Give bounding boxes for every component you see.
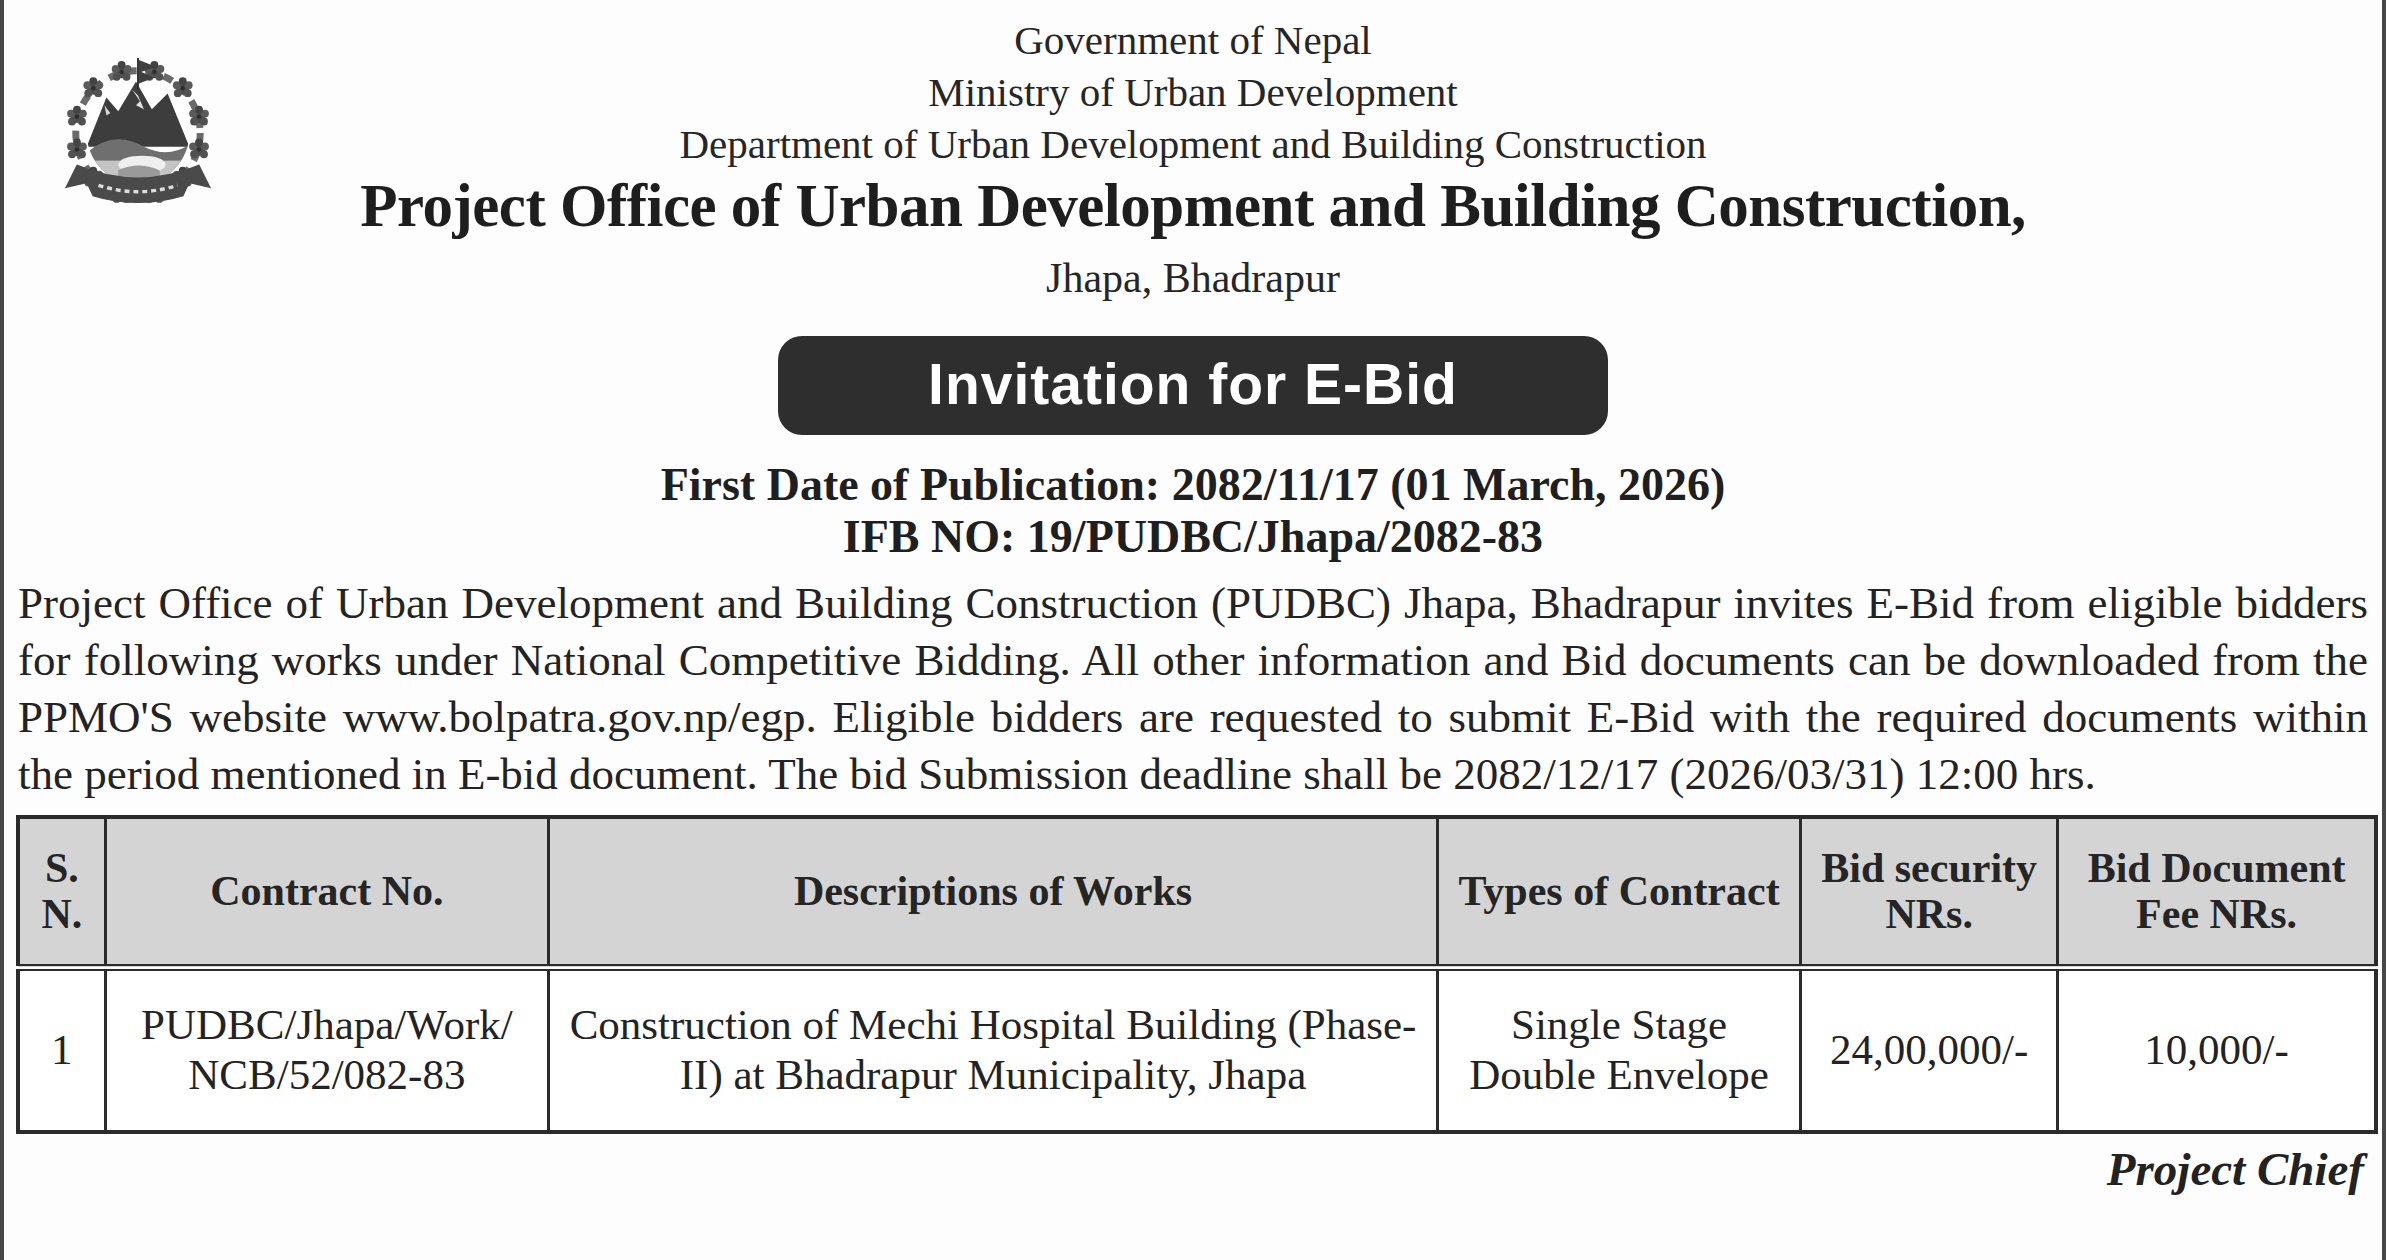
- table-row: 1 PUDBC/Jhapa/Work/ NCB/52/082-83 Constr…: [18, 967, 2376, 1132]
- cell-contract-no: PUDBC/Jhapa/Work/ NCB/52/082-83: [105, 967, 548, 1132]
- office-title: Project Office of Urban Development and …: [4, 170, 2382, 242]
- table-header-bid-fee: Bid Document Fee NRs.: [2058, 817, 2376, 967]
- nepal-emblem-icon: [48, 50, 228, 208]
- location-line: Jhapa, Bhadrapur: [4, 250, 2382, 306]
- ebid-banner: Invitation for E-Bid: [778, 336, 1608, 435]
- publication-date-line: First Date of Publication: 2082/11/17 (0…: [4, 459, 2382, 511]
- gov-line: Government of Nepal: [4, 14, 2382, 66]
- header-block: Government of Nepal Ministry of Urban De…: [4, 14, 2382, 306]
- ifb-number-line: IFB NO: 19/PUDBC/Jhapa/2082-83: [4, 511, 2382, 563]
- dept-line: Department of Urban Development and Buil…: [4, 118, 2382, 170]
- table-header-sn: S. N.: [18, 817, 105, 967]
- cell-contract-type: Single Stage Double Envelope: [1438, 967, 1801, 1132]
- cell-bid-fee: 10,000/-: [2058, 967, 2376, 1132]
- cell-bid-security: 24,00,000/-: [1801, 967, 2058, 1132]
- bid-table: S. N. Contract No. Descriptions of Works…: [16, 815, 2378, 1134]
- signature-project-chief: Project Chief: [4, 1144, 2364, 1194]
- table-header-description: Descriptions of Works: [549, 817, 1438, 967]
- table-header-bid-security: Bid security NRs.: [1801, 817, 2058, 967]
- cell-description: Construction of Mechi Hospital Building …: [549, 967, 1438, 1132]
- banner-row: Invitation for E-Bid: [4, 336, 2382, 435]
- table-header-row: S. N. Contract No. Descriptions of Works…: [18, 817, 2376, 967]
- nepal-emblem-logo: [48, 50, 228, 208]
- table-header-contract-no: Contract No.: [105, 817, 548, 967]
- cell-sn: 1: [18, 967, 105, 1132]
- table-header-contract-type: Types of Contract: [1438, 817, 1801, 967]
- notice-sheet: Government of Nepal Ministry of Urban De…: [0, 0, 2386, 1260]
- notice-paragraph: Project Office of Urban Development and …: [18, 575, 2368, 803]
- ministry-line: Ministry of Urban Development: [4, 66, 2382, 118]
